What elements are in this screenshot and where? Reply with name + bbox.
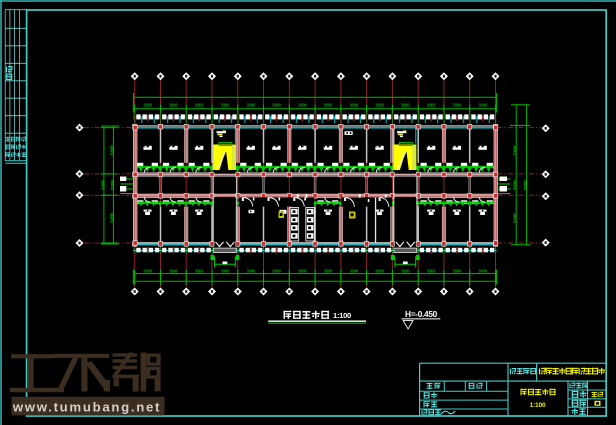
svg-text:3300: 3300 [375, 268, 384, 273]
svg-text:3300: 3300 [324, 268, 333, 273]
svg-text:3300: 3300 [298, 102, 307, 107]
svg-text:3300: 3300 [478, 268, 487, 273]
svg-text:3300: 3300 [375, 102, 384, 107]
svg-text:3300: 3300 [401, 268, 410, 273]
svg-text:3300: 3300 [453, 102, 462, 107]
svg-text:3300: 3300 [221, 102, 230, 107]
svg-text:3300: 3300 [324, 102, 333, 107]
svg-text:3300: 3300 [246, 102, 255, 107]
svg-text:3300: 3300 [195, 102, 204, 107]
svg-text:3300: 3300 [101, 180, 107, 190]
svg-text:www.tumubang.net: www.tumubang.net [12, 399, 161, 414]
svg-text:3300: 3300 [195, 268, 204, 273]
svg-text:3300: 3300 [246, 268, 255, 273]
svg-text:H=-0.450: H=-0.450 [405, 309, 438, 319]
svg-text:3300: 3300 [110, 213, 116, 223]
svg-text:3300: 3300 [349, 102, 358, 107]
svg-text:1:100: 1:100 [530, 402, 546, 409]
svg-text:3300: 3300 [272, 102, 281, 107]
svg-text:3300: 3300 [427, 268, 436, 273]
svg-text:3300: 3300 [143, 102, 152, 107]
svg-text:3300: 3300 [349, 268, 358, 273]
svg-text:3300: 3300 [221, 268, 230, 273]
svg-text:3300: 3300 [453, 268, 462, 273]
svg-text:3300: 3300 [109, 145, 115, 155]
svg-text:3300: 3300 [478, 102, 487, 107]
svg-text:3300: 3300 [169, 268, 178, 273]
svg-text:3300: 3300 [512, 213, 518, 223]
svg-text:3300: 3300 [272, 268, 281, 273]
svg-text:3300: 3300 [110, 180, 116, 190]
svg-text:3300: 3300 [401, 102, 410, 107]
svg-text:1:100: 1:100 [333, 311, 351, 320]
svg-text:3300: 3300 [513, 145, 519, 155]
svg-text:3300: 3300 [298, 268, 307, 273]
svg-text:3300: 3300 [143, 268, 152, 273]
svg-text:3300: 3300 [523, 180, 529, 190]
svg-text:3300: 3300 [169, 102, 178, 107]
svg-text:3300: 3300 [427, 102, 436, 107]
svg-text:3300: 3300 [513, 180, 519, 190]
